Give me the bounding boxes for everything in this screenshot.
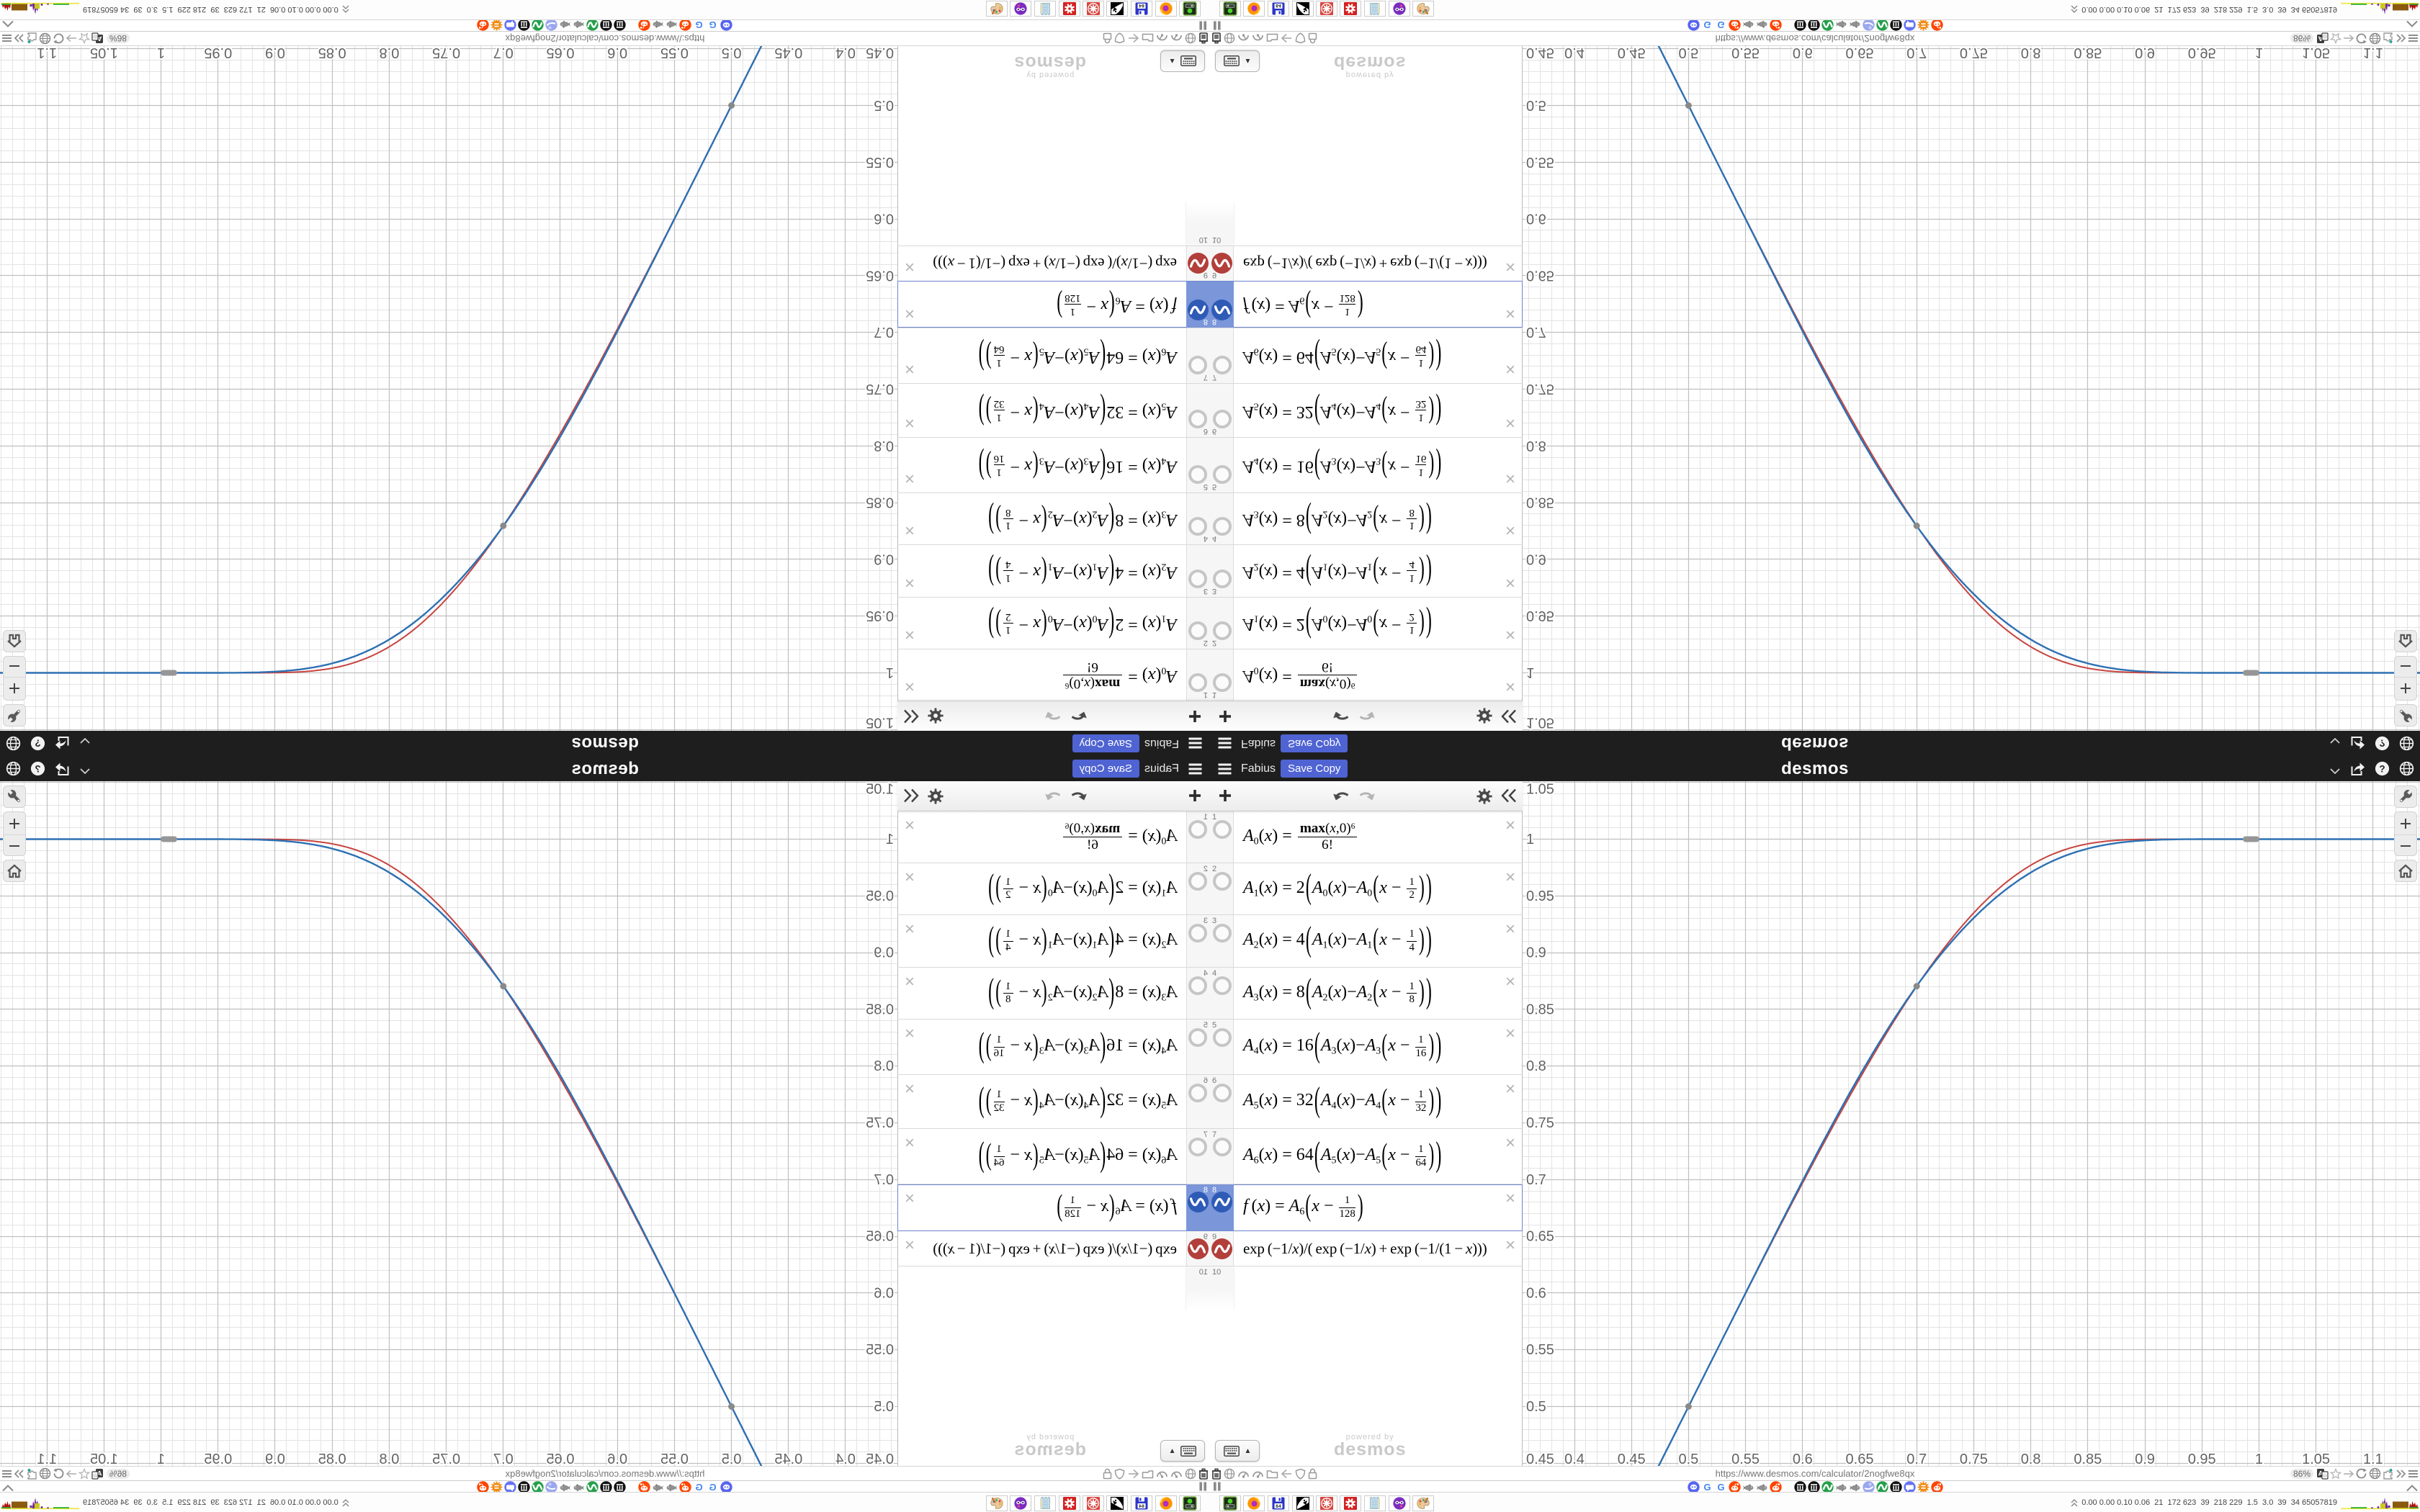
svg-text:0.75: 0.75 (1960, 1452, 1988, 1466)
svg-text:0.85: 0.85 (866, 1002, 894, 1017)
svg-text:0.7: 0.7 (874, 324, 894, 340)
svg-text:0.85: 0.85 (318, 46, 346, 60)
svg-text:1: 1 (2255, 1452, 2263, 1466)
svg-text:0.6: 0.6 (1793, 46, 1813, 60)
svg-text:☆: ☆ (92, 34, 97, 40)
svg-text:0.45: 0.45 (774, 1452, 802, 1466)
svg-text:0.75: 0.75 (1526, 1115, 1554, 1131)
svg-text:0.9: 0.9 (265, 1452, 285, 1466)
svg-text:0.95: 0.95 (866, 888, 894, 904)
svg-text:1.05: 1.05 (2302, 46, 2330, 60)
svg-text:0.8: 0.8 (2021, 1452, 2041, 1466)
svg-text:0.75: 0.75 (432, 1452, 460, 1466)
svg-text:0.45: 0.45 (866, 1452, 894, 1466)
svg-text:0.65: 0.65 (866, 1229, 894, 1245)
svg-text:0.75: 0.75 (866, 381, 894, 397)
svg-text:1.05: 1.05 (1526, 782, 1554, 798)
svg-text:64: 64 (1139, 3, 1144, 8)
svg-text:1.1: 1.1 (2363, 1452, 2383, 1466)
svg-text:1.1: 1.1 (37, 1452, 57, 1466)
svg-text:64: 64 (1276, 1504, 1281, 1509)
svg-text:0.7: 0.7 (493, 1452, 514, 1466)
svg-text:0.65: 0.65 (547, 1452, 575, 1466)
svg-text:0.95: 0.95 (2188, 46, 2216, 60)
svg-text:0.9: 0.9 (2135, 46, 2155, 60)
svg-text:G: G (696, 20, 703, 31)
svg-text:0.8: 0.8 (874, 1058, 894, 1074)
svg-text:0.5: 0.5 (874, 1399, 894, 1415)
svg-text:G: G (709, 1482, 717, 1493)
svg-text:1.05: 1.05 (866, 782, 894, 798)
svg-text:G: G (1717, 1482, 1724, 1493)
svg-text:0.55: 0.55 (1731, 46, 1760, 60)
svg-text:0.5: 0.5 (1526, 1399, 1546, 1415)
svg-text:0.5: 0.5 (1526, 97, 1546, 113)
svg-text:0.9: 0.9 (1526, 551, 1546, 567)
svg-text:1: 1 (1526, 665, 1534, 680)
svg-text:0.65: 0.65 (866, 267, 894, 283)
svg-text:0.8: 0.8 (874, 438, 894, 454)
svg-text:0.55: 0.55 (660, 46, 689, 60)
svg-text:1.05: 1.05 (90, 1452, 118, 1466)
svg-text:1: 1 (157, 46, 165, 60)
svg-text:0.4: 0.4 (1564, 46, 1585, 60)
svg-text:0.6: 0.6 (874, 211, 894, 227)
svg-text:0.75: 0.75 (866, 1115, 894, 1131)
svg-text:64: 64 (1276, 3, 1281, 8)
svg-text:0.95: 0.95 (204, 46, 232, 60)
svg-text:1.1: 1.1 (37, 46, 57, 60)
svg-text:0.6: 0.6 (607, 46, 627, 60)
svg-text:0.85: 0.85 (866, 495, 894, 510)
svg-text:0.45: 0.45 (1618, 46, 1646, 60)
svg-text:?: ? (2379, 738, 2385, 749)
svg-text:1: 1 (886, 832, 894, 847)
svg-text:0.7: 0.7 (1526, 1172, 1546, 1188)
svg-text:G: G (696, 1482, 703, 1493)
svg-text:☆: ☆ (2322, 1472, 2327, 1479)
svg-text:0.55: 0.55 (1526, 1342, 1554, 1358)
svg-text:1.05: 1.05 (2302, 1452, 2330, 1466)
svg-text:1: 1 (2255, 46, 2263, 60)
svg-text:0.45: 0.45 (774, 46, 802, 60)
svg-text:0.8: 0.8 (379, 46, 399, 60)
svg-text:0.75: 0.75 (432, 46, 460, 60)
svg-text:0.75: 0.75 (1960, 46, 1988, 60)
svg-text:0.45: 0.45 (1618, 1452, 1646, 1466)
svg-text:0.85: 0.85 (1526, 495, 1554, 510)
svg-text:?: ? (2379, 764, 2385, 775)
svg-text:0.4: 0.4 (835, 46, 856, 60)
svg-text:0.5: 0.5 (722, 46, 742, 60)
svg-text:0.85: 0.85 (2074, 46, 2102, 60)
svg-text:1: 1 (157, 1452, 165, 1466)
svg-text:64: 64 (1139, 1504, 1144, 1509)
svg-text:1: 1 (886, 665, 894, 680)
svg-text:0.7: 0.7 (1906, 46, 1927, 60)
svg-text:0.65: 0.65 (1846, 1452, 1874, 1466)
svg-text:0.5: 0.5 (874, 97, 894, 113)
svg-text:0.55: 0.55 (660, 1452, 689, 1466)
svg-text:0.5: 0.5 (722, 1452, 742, 1466)
svg-text:1.05: 1.05 (1526, 715, 1554, 731)
svg-text:0.6: 0.6 (1526, 1285, 1546, 1301)
svg-text:0.6: 0.6 (874, 1285, 894, 1301)
svg-text:0.85: 0.85 (1526, 1002, 1554, 1017)
svg-text:0.55: 0.55 (866, 154, 894, 170)
svg-text:0.9: 0.9 (265, 46, 285, 60)
svg-text:0.65: 0.65 (1526, 267, 1554, 283)
svg-text:0.5: 0.5 (1678, 1452, 1698, 1466)
svg-text:0.45: 0.45 (1526, 1452, 1554, 1466)
svg-text:1.05: 1.05 (866, 715, 894, 731)
svg-text:0.7: 0.7 (874, 1172, 894, 1188)
svg-text:0.8: 0.8 (1526, 1058, 1546, 1074)
svg-text:0.7: 0.7 (1526, 324, 1546, 340)
svg-text:1.05: 1.05 (90, 46, 118, 60)
svg-text:0.8: 0.8 (1526, 438, 1546, 454)
svg-text:0.85: 0.85 (318, 1452, 346, 1466)
svg-text:1.1: 1.1 (2363, 46, 2383, 60)
svg-text:0.6: 0.6 (1526, 211, 1546, 227)
svg-text:0.65: 0.65 (1526, 1229, 1554, 1245)
svg-text:G: G (1717, 20, 1724, 31)
svg-text:0.7: 0.7 (1906, 1452, 1927, 1466)
svg-text:0.9: 0.9 (1526, 945, 1546, 961)
svg-text:0.9: 0.9 (2135, 1452, 2155, 1466)
svg-text:0.8: 0.8 (379, 1452, 399, 1466)
svg-text:G: G (709, 20, 717, 31)
svg-text:0.55: 0.55 (1526, 154, 1554, 170)
svg-text:0.6: 0.6 (1793, 1452, 1813, 1466)
svg-text:0.9: 0.9 (874, 945, 894, 961)
svg-text:0.95: 0.95 (2188, 1452, 2216, 1466)
svg-text:0.7: 0.7 (493, 46, 514, 60)
svg-text:0.55: 0.55 (1731, 1452, 1760, 1466)
svg-text:?: ? (35, 764, 40, 775)
svg-text:0.9: 0.9 (874, 551, 894, 567)
svg-text:0.65: 0.65 (1846, 46, 1874, 60)
svg-text:0.6: 0.6 (607, 1452, 627, 1466)
svg-text:0.95: 0.95 (1526, 888, 1554, 904)
svg-text:G: G (1703, 20, 1711, 31)
svg-text:0.4: 0.4 (835, 1452, 856, 1466)
svg-text:1: 1 (1526, 832, 1534, 847)
svg-text:0.5: 0.5 (1678, 46, 1698, 60)
svg-text:0.8: 0.8 (2021, 46, 2041, 60)
svg-text:0.65: 0.65 (547, 46, 575, 60)
svg-text:☆: ☆ (92, 1472, 97, 1479)
svg-text:0.75: 0.75 (1526, 381, 1554, 397)
svg-text:0.55: 0.55 (866, 1342, 894, 1358)
svg-text:?: ? (35, 738, 40, 749)
svg-text:0.45: 0.45 (1526, 46, 1554, 60)
svg-text:☆: ☆ (2322, 34, 2327, 40)
svg-text:G: G (1703, 1482, 1711, 1493)
svg-text:0.95: 0.95 (1526, 608, 1554, 624)
svg-text:0.45: 0.45 (866, 46, 894, 60)
svg-text:0.95: 0.95 (866, 608, 894, 624)
svg-text:0.4: 0.4 (1564, 1452, 1585, 1466)
svg-text:0.95: 0.95 (204, 1452, 232, 1466)
svg-text:0.85: 0.85 (2074, 1452, 2102, 1466)
